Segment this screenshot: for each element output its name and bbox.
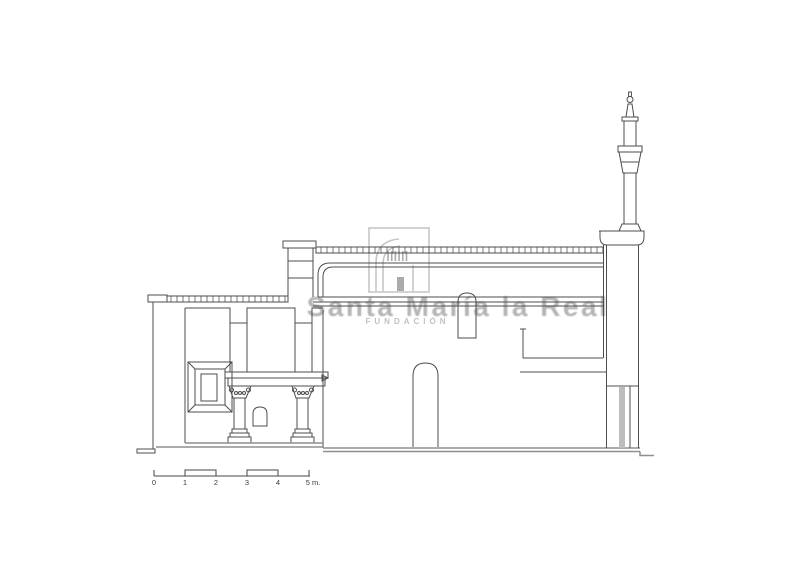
- capital-leaf: [235, 392, 238, 395]
- scale-label-5m: 5 m.: [306, 478, 321, 487]
- entablature-cornice: [225, 372, 328, 378]
- chapel-ceiling-line: [185, 308, 323, 323]
- ledge-bracket: [520, 329, 606, 372]
- chapel-roof-hatch: [167, 296, 288, 302]
- capital-leaf: [306, 392, 309, 395]
- left-wall-foot: [137, 449, 155, 453]
- scale-segment-1-2: [185, 470, 216, 476]
- scale-ticks: [154, 470, 309, 476]
- nave-floor: [323, 448, 654, 456]
- base-torus: [230, 433, 249, 437]
- left-chapel: [137, 295, 328, 453]
- capital-leaf: [243, 392, 246, 395]
- capital-band: [618, 146, 642, 152]
- scale-label-0: 0: [152, 478, 156, 487]
- shaft: [297, 398, 308, 429]
- pinnacle: [618, 92, 642, 231]
- scale-label-4: 4: [276, 478, 280, 487]
- window-slot: [201, 374, 217, 401]
- scale-label-3: 3: [245, 478, 249, 487]
- base-plinth: [291, 437, 314, 443]
- west-wall-section: [288, 248, 313, 297]
- base-flare: [619, 224, 641, 231]
- splayed-window: [188, 362, 232, 412]
- column-left: [228, 386, 251, 443]
- scale-label-2: 2: [214, 478, 218, 487]
- base-plinth: [228, 437, 251, 443]
- upper-shaft: [624, 121, 636, 146]
- section-poche: [619, 387, 625, 448]
- base-torus: [295, 429, 310, 433]
- lower-shaft: [624, 173, 636, 224]
- right-wall: [599, 231, 644, 448]
- base-torus: [232, 429, 247, 433]
- arched-doorway: [413, 363, 438, 447]
- piers-above-columns: [230, 323, 312, 372]
- west-wall-cap: [283, 241, 316, 248]
- column-right: [291, 386, 314, 443]
- capital-leaf: [239, 392, 242, 395]
- capital-leaf: [302, 392, 305, 395]
- entablature-architrave: [228, 378, 325, 386]
- nave: [283, 241, 654, 456]
- capital-leaf: [298, 392, 301, 395]
- section-drawing: [0, 0, 800, 566]
- shaft: [234, 398, 245, 429]
- scale-bar: [154, 470, 310, 476]
- base-torus: [293, 433, 312, 437]
- finial-knob: [627, 97, 633, 103]
- vault-intrados: [323, 267, 603, 297]
- finial-taper: [626, 104, 634, 117]
- finial-tip: [629, 92, 632, 97]
- nave-roof-hatch: [316, 247, 603, 253]
- architectural-drawing-page: Santa María la Real FUNDACIÓN: [0, 0, 800, 566]
- vault-extrados: [318, 263, 603, 297]
- scale-label-1: 1: [183, 478, 187, 487]
- arched-niche: [253, 407, 267, 426]
- cornice: [599, 231, 644, 245]
- left-wall-cap: [148, 295, 167, 302]
- collar: [622, 117, 638, 121]
- inner-face: [604, 245, 607, 372]
- scale-segment-3-4: [247, 470, 278, 476]
- clerestory-window: [458, 293, 476, 338]
